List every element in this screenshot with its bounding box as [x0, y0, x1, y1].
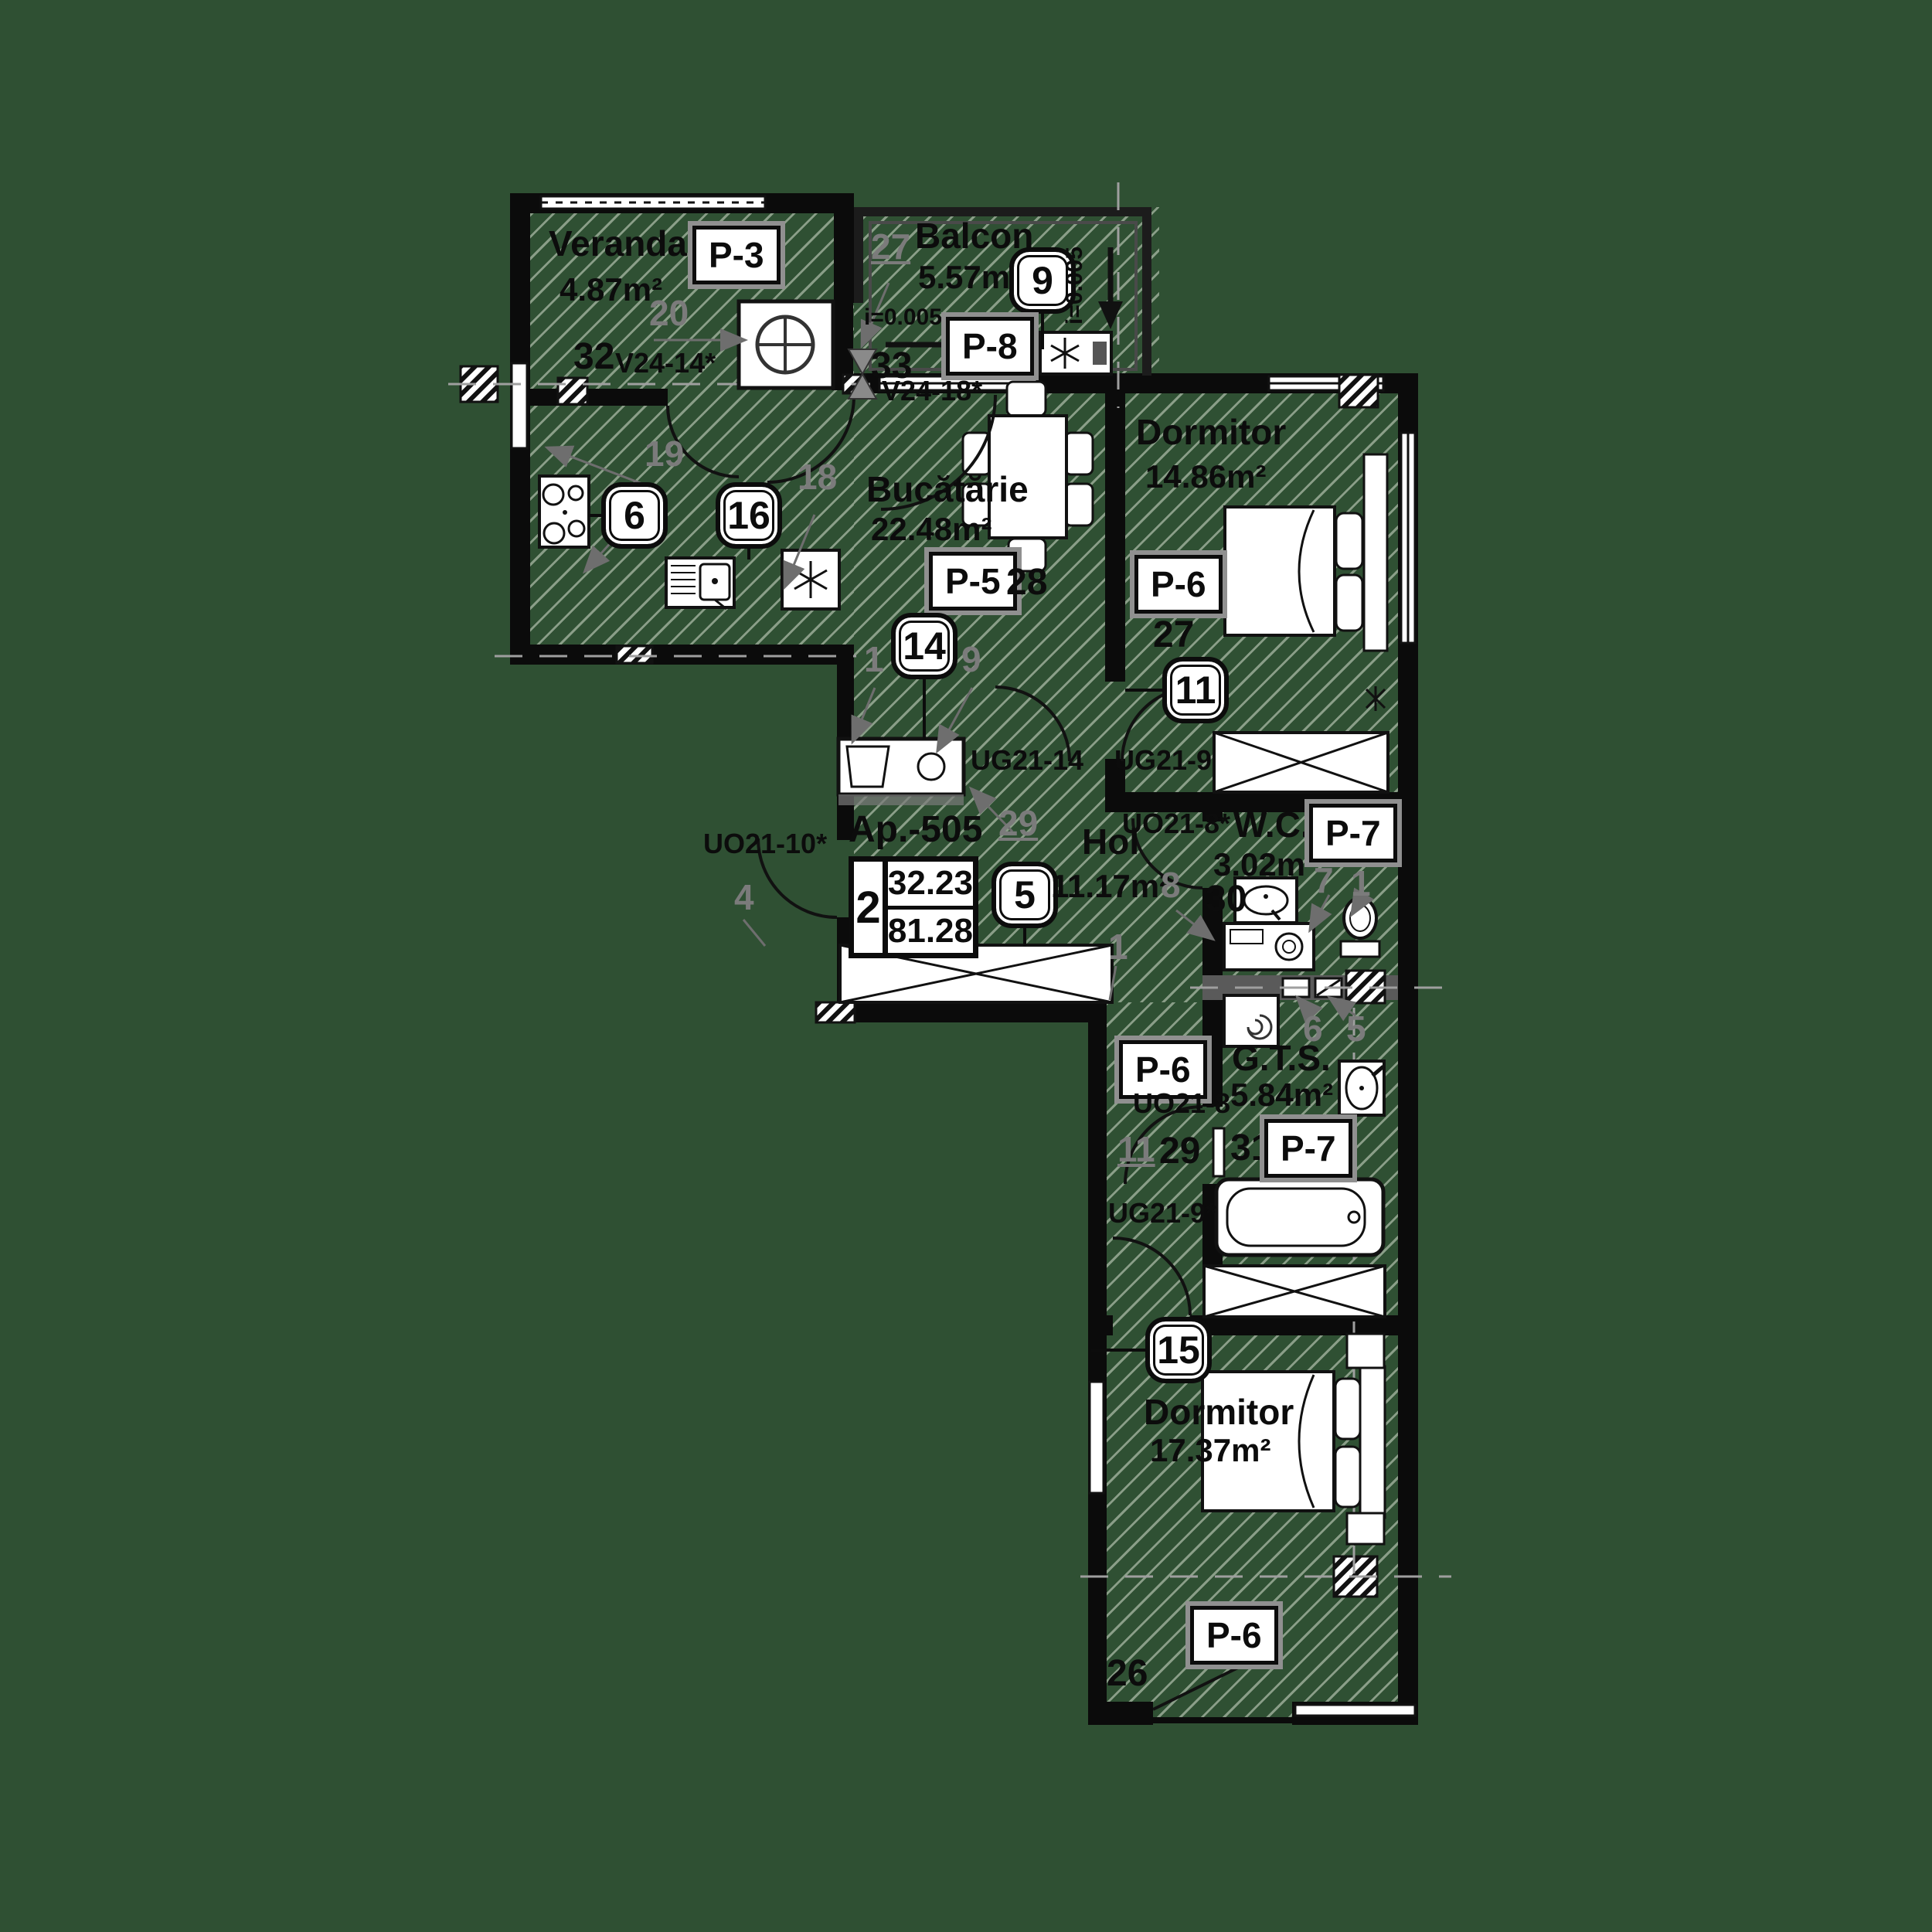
mark-7-wc: 7: [1314, 862, 1334, 898]
mark-29-hall: 29: [1159, 1133, 1200, 1170]
mark-1-kitchen: 1: [864, 641, 884, 677]
door-code-v24-14: V24-14*: [615, 349, 716, 377]
kitchen-sink-icon: [666, 558, 734, 609]
counter-sink-icon: [838, 739, 964, 805]
mark-29-hol: 29: [998, 805, 1038, 841]
panel-box-p5: P-5: [929, 552, 1017, 611]
room-area-bucatarie: 22.48m²: [871, 513, 992, 546]
apartment-label: Ap.-505: [849, 811, 982, 849]
mark-4-entry: 4: [734, 879, 754, 915]
badge-15: 15: [1145, 1317, 1212, 1383]
mark-30: 30: [1206, 881, 1247, 918]
slope-label-vertical: i=0.005: [1063, 247, 1087, 325]
door-code-ug21-14: UG21-14: [971, 747, 1083, 774]
badge-11: 11: [1162, 657, 1229, 723]
door-code-v24-18: V24-18*: [882, 377, 982, 405]
mark-20: 20: [649, 295, 689, 331]
badge-6: 6: [601, 482, 668, 549]
badge-14: 14: [891, 613, 957, 679]
mark-1-wc: 1: [1351, 866, 1371, 901]
boiler-icon: [739, 301, 833, 388]
apartment-area-total: 81.28: [888, 910, 973, 954]
room-area-gts: 5.84m²: [1230, 1079, 1333, 1111]
mark-19: 19: [645, 436, 684, 471]
mark-1-hol: 1: [1108, 929, 1128, 964]
door-code-uo21-8: UO21-8: [1133, 1090, 1230, 1117]
bathtub-icon: [1216, 1179, 1383, 1255]
door-code-uo21-10: UO21-10*: [703, 830, 827, 858]
panel-box-p7-wc: P-7: [1309, 804, 1397, 862]
door-code-uo21-8s: UO21-8*: [1122, 810, 1230, 838]
apartment-area-useful: 32.23: [888, 862, 973, 910]
gts-sink-icon: [1339, 1061, 1384, 1115]
wardrobe-icon-dormitor1: [1214, 733, 1388, 792]
room-area-balcon: 5.57m²: [918, 261, 1021, 294]
mark-28: 28: [1006, 564, 1047, 601]
washing-machine-icon: [1224, 923, 1314, 970]
room-name-veranda: Veranda: [549, 226, 687, 261]
room-name-wc: W.C.: [1233, 807, 1311, 842]
badge-5: 5: [992, 862, 1058, 928]
door-code-ug21-9s: UG21-9*: [1108, 1199, 1216, 1227]
room-name-gts: G.T.S.: [1232, 1040, 1331, 1076]
slope-label-horizontal: i=0.005: [864, 306, 942, 329]
panel-box-p6-dormitor2: P-6: [1190, 1606, 1278, 1665]
apartment-info-box: 2 32.23 81.28: [849, 856, 978, 958]
room-name-dormitor1: Dormitor: [1136, 414, 1286, 450]
floor-plan-page: { "colors": { "background": "#2f5033", "…: [0, 0, 1932, 1932]
panel-box-p8: P-8: [946, 317, 1034, 376]
stove-icon: [539, 476, 589, 547]
room-area-dormitor1: 14.86m²: [1145, 461, 1266, 493]
mark-26: 26: [1107, 1655, 1148, 1692]
mark-5-vent: 5: [1346, 1011, 1366, 1046]
mark-9-kitchen: 9: [961, 641, 981, 677]
ac-unit-icon: [1040, 332, 1111, 374]
mark-11-hall: 11: [1117, 1131, 1155, 1167]
room-name-bucatarie: Bucătărie: [866, 471, 1029, 507]
toilet-icon: [1341, 898, 1379, 957]
room-area-veranda: 4.87m²: [560, 274, 662, 306]
mark-18: 18: [798, 459, 837, 495]
room-area-wc: 3.02m²: [1213, 849, 1316, 881]
room-name-dormitor2: Dormitor: [1144, 1394, 1294, 1430]
mark-8-wc: 8: [1161, 867, 1181, 903]
mark-27-dormitor1: 27: [1153, 617, 1194, 654]
badge-16: 16: [716, 482, 782, 549]
wardrobe-icon-gts: [1204, 1266, 1385, 1317]
room-area-dormitor2: 17.37m²: [1150, 1434, 1270, 1467]
mark-32: 32: [573, 338, 614, 376]
panel-box-p3: P-3: [692, 226, 781, 284]
fridge-icon: [782, 550, 839, 609]
panel-box-p7-gts: P-7: [1264, 1119, 1352, 1178]
room-area-hol: 11.17m²: [1051, 870, 1170, 903]
apartment-rooms-count: 2: [854, 862, 888, 953]
towel-rail-icon: [1213, 1128, 1224, 1176]
panel-box-p6-dormitor1: P-6: [1134, 555, 1223, 614]
mark-27-balcon: 27: [871, 229, 910, 264]
door-code-ug21-9: UG21-9: [1114, 747, 1212, 774]
room-name-balcon: Balcon: [915, 218, 1033, 253]
floor-plan-canvas: Veranda 4.87m² P-3 20 32 V24-14* 19 18 B…: [0, 0, 1932, 1932]
